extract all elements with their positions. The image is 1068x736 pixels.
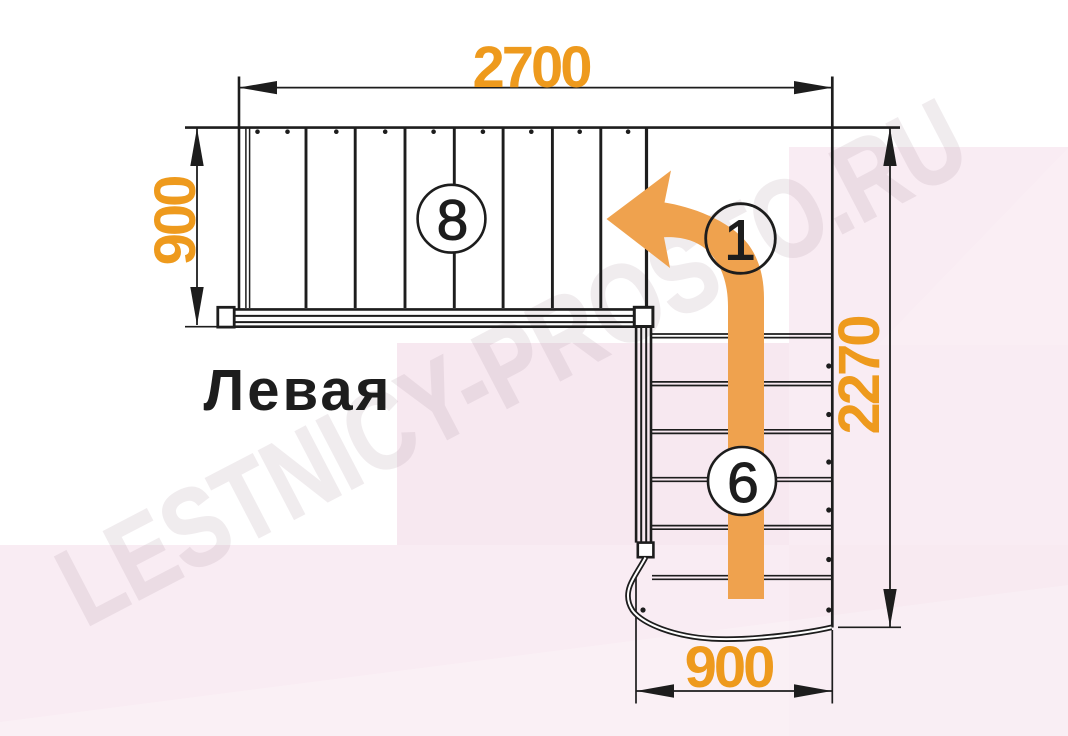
svg-text:2270: 2270 <box>827 317 892 435</box>
svg-text:Левая: Левая <box>204 358 393 423</box>
svg-text:900: 900 <box>685 635 774 700</box>
svg-text:2700: 2700 <box>472 35 590 100</box>
svg-text:8: 8 <box>437 189 469 253</box>
svg-text:900: 900 <box>143 177 208 266</box>
svg-text:1: 1 <box>724 209 756 273</box>
svg-text:6: 6 <box>727 451 759 515</box>
